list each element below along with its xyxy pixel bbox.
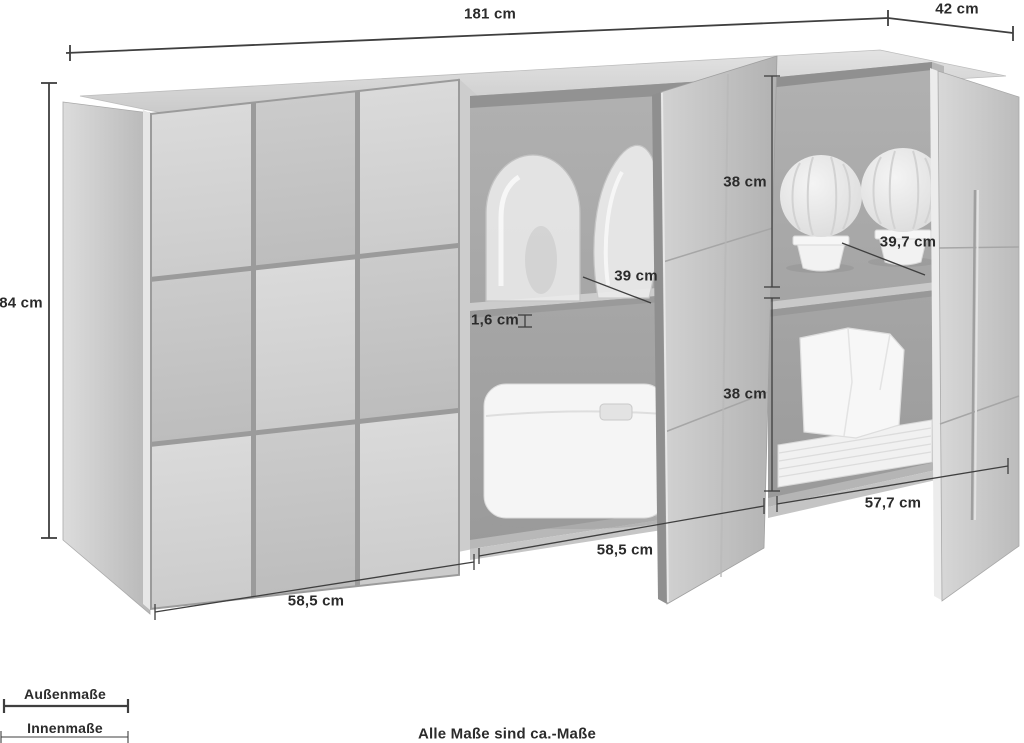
outer-height-label: 84 cm xyxy=(0,296,43,311)
middle-door-front xyxy=(661,56,777,604)
lower-compartment-height-label: 38 cm xyxy=(723,387,767,402)
glass-dome-item xyxy=(486,155,580,301)
left-door-open xyxy=(63,102,150,614)
right-door-front xyxy=(938,71,1019,601)
footnote-label: Alle Maße sind ca.-Maße xyxy=(418,727,596,742)
storage-box-item xyxy=(480,384,666,529)
left-inner-width-label: 58,5 cm xyxy=(288,594,344,609)
right-shelf-depth-label: 39,7 cm xyxy=(880,235,936,250)
sideboard-illustration xyxy=(0,0,1024,743)
legend-inner-label: Innenmaße xyxy=(27,721,103,735)
outer-width-label: 181 cm xyxy=(464,7,516,22)
legend-outer-label: Außenmaße xyxy=(24,687,106,701)
outer-depth-label: 42 cm xyxy=(935,2,979,17)
shelf-thickness-label: 1,6 cm xyxy=(471,313,519,328)
checkered-door-edge xyxy=(143,110,150,610)
paper-bag-item xyxy=(800,328,904,438)
right-compartment xyxy=(768,62,945,518)
right-door-open xyxy=(930,68,1019,601)
product-dimension-diagram: 181 cm 42 cm 84 cm 38 cm 38 cm 39,7 cm 3… xyxy=(0,0,1024,743)
outer-depth-dimension-line xyxy=(888,18,1013,41)
upper-compartment-height-label: 38 cm xyxy=(723,175,767,190)
checkered-door xyxy=(150,79,460,610)
cabinet xyxy=(63,50,1019,614)
middle-inner-width-label: 58,5 cm xyxy=(597,543,653,558)
right-inner-width-label: 57,7 cm xyxy=(865,496,921,511)
outer-height-dimension-line xyxy=(41,83,57,538)
middle-shelf-depth-label: 39 cm xyxy=(614,269,658,284)
